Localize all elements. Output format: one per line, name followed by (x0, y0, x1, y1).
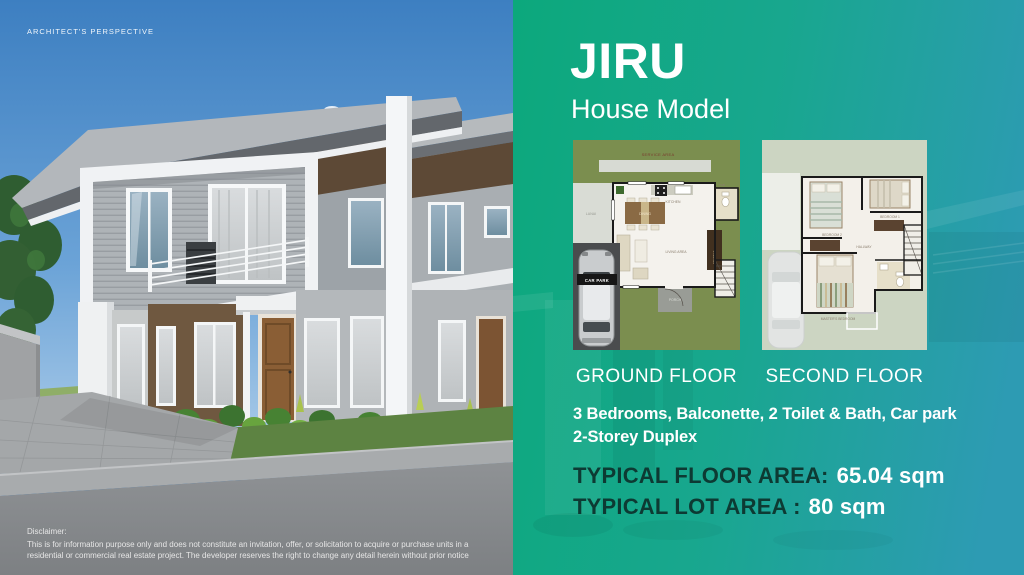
brochure-slide: ARCHITECT'S PERSPECTIVE Disclaimer: This… (0, 0, 1024, 575)
front-door (258, 314, 298, 422)
adjacent-small-window (484, 206, 510, 238)
lot-area-value: 80 sqm (809, 494, 886, 519)
gf-service-area-label: SERVICE AREA (642, 152, 675, 157)
lower-window-1 (117, 324, 145, 410)
porch-post (243, 312, 250, 422)
gf-porch-label: PORCH (669, 298, 682, 302)
floor-area-label: TYPICAL FLOOR AREA: (573, 463, 829, 488)
lower-window-5 (350, 316, 384, 408)
balcony-sliding-door (208, 184, 286, 284)
lot-area-label: TYPICAL LOT AREA : (573, 494, 801, 519)
kitchen-counter (651, 185, 693, 196)
lower-window-2 (156, 326, 176, 406)
adjacent-unit (405, 113, 513, 435)
lower-window-4 (304, 318, 340, 408)
sf-hallway-label: HALLWAY (856, 245, 872, 249)
adjacent-upper-window (428, 202, 464, 274)
sink-icon (675, 186, 691, 194)
bed-icon-bedroom1 (870, 180, 910, 208)
architects-perspective-label: ARCHITECT'S PERSPECTIVE (27, 27, 154, 36)
car-park-banner: CAR PARK (577, 274, 617, 285)
toilet-icon (722, 192, 729, 207)
upper-window-2 (348, 198, 384, 268)
stove-icon (655, 185, 667, 196)
gf-living-area-label: LIVING AREA (665, 250, 687, 254)
gf-dining-label: DINING (639, 212, 651, 216)
gf-lanai-label: LANAI (586, 212, 596, 216)
wardrobe-icon (810, 240, 840, 251)
dresser-icon (874, 220, 904, 231)
ground-floor-plan: SERVICE AREA LANAI (573, 140, 740, 350)
ground-floor-label: GROUND FLOOR (573, 366, 740, 388)
second-floor-plan: BEDROOM 2 BEDROOM 1 HALLWAY MASTER'S BED… (762, 140, 927, 350)
white-fin-pillar (386, 96, 410, 432)
model-subtitle: House Model (571, 94, 730, 125)
car-icon (579, 250, 614, 346)
sf-white-backdrop (762, 173, 800, 250)
model-name: JIRU (570, 36, 686, 86)
disclaimer: Disclaimer: This is for information purp… (27, 527, 505, 562)
gf-service-strip (599, 160, 711, 172)
second-floor-label: SECOND FLOOR (762, 366, 927, 388)
disclaimer-heading: Disclaimer: (27, 527, 505, 536)
adjacent-lower-window (438, 320, 466, 402)
bed-icon-masters (817, 255, 853, 307)
gf-tb-label: T&B (719, 183, 725, 187)
house-render-svg (0, 0, 513, 575)
floor-plans: SERVICE AREA LANAI (573, 140, 927, 350)
disclaimer-body: This is for information purpose only and… (27, 540, 505, 562)
gf-car-park-label: CAR PARK (585, 278, 609, 283)
features-line2: 2-Storey Duplex (573, 426, 957, 449)
house-render: ARCHITECT'S PERSPECTIVE Disclaimer: This… (0, 0, 513, 575)
upper-window-1 (126, 188, 172, 272)
area-specs: TYPICAL FLOOR AREA:65.04 sqm TYPICAL LOT… (573, 460, 945, 522)
features-line1: 3 Bedrooms, Balconette, 2 Toilet & Bath,… (573, 403, 957, 426)
bed-icon-bedroom2 (810, 182, 842, 228)
features: 3 Bedrooms, Balconette, 2 Toilet & Bath,… (573, 403, 957, 449)
sf-bedroom2-label: BEDROOM 2 (822, 233, 842, 237)
gf-kitchen-label: KITCHEN (666, 200, 681, 204)
sf-bedroom1-label: BEDROOM 1 (880, 215, 900, 219)
sf-masters-bedroom-label: MASTER'S BEDROOM (821, 317, 856, 321)
floor-area-value: 65.04 sqm (837, 463, 945, 488)
lot-area-row: TYPICAL LOT AREA :80 sqm (573, 491, 945, 522)
floor-area-row: TYPICAL FLOOR AREA:65.04 sqm (573, 460, 945, 491)
lower-window-3 (194, 322, 236, 408)
car-ghost-icon (768, 252, 804, 348)
adjacent-door (476, 316, 506, 412)
info-panel: JIRU House Model SERVICE AREA LANAI (513, 0, 1024, 575)
plant-icon (616, 186, 624, 194)
